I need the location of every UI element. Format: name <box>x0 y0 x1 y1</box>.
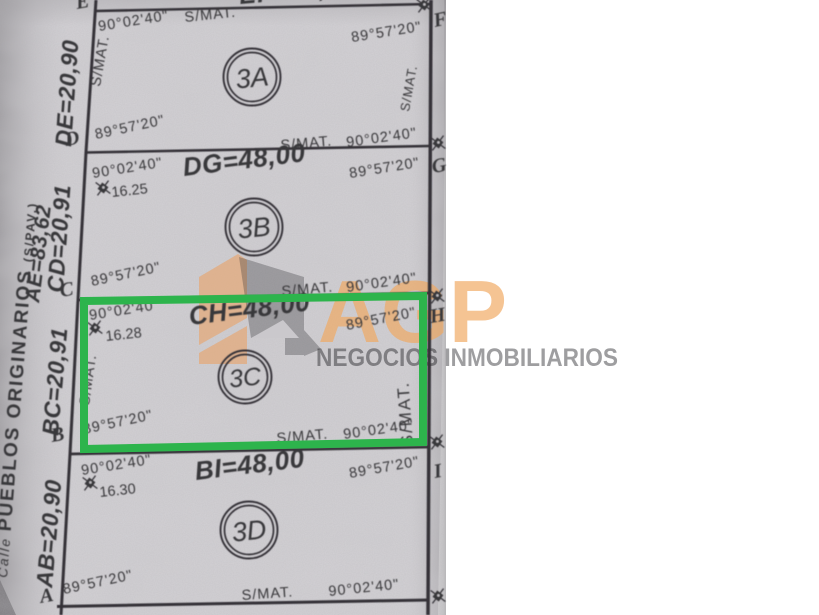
svg-text:3B: 3B <box>236 211 272 244</box>
svg-text:3A: 3A <box>234 61 270 94</box>
svg-text:3D: 3D <box>230 514 267 547</box>
svg-text:3C: 3C <box>228 362 264 393</box>
svg-text:NEGOCIOS INMOBILIARIOS: NEGOCIOS INMOBILIARIOS <box>316 344 618 372</box>
